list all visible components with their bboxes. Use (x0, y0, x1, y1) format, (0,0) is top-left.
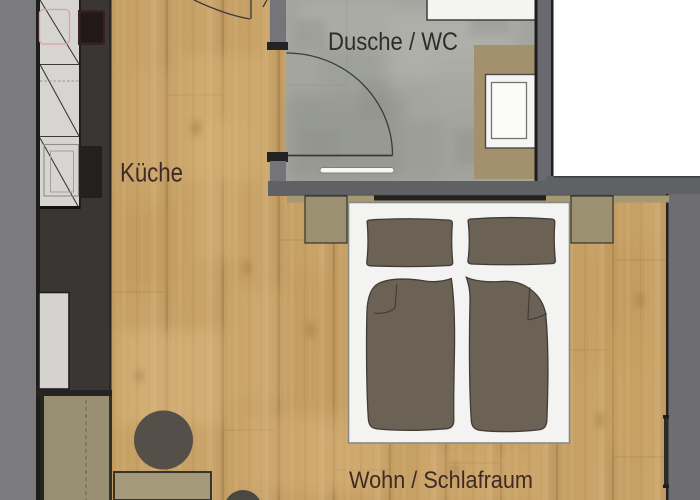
svg-text:Küche: Küche (120, 158, 183, 188)
svg-text:Dusche / WC: Dusche / WC (328, 28, 458, 56)
svg-text:Wohn / Schlafraum: Wohn / Schlafraum (349, 467, 533, 494)
